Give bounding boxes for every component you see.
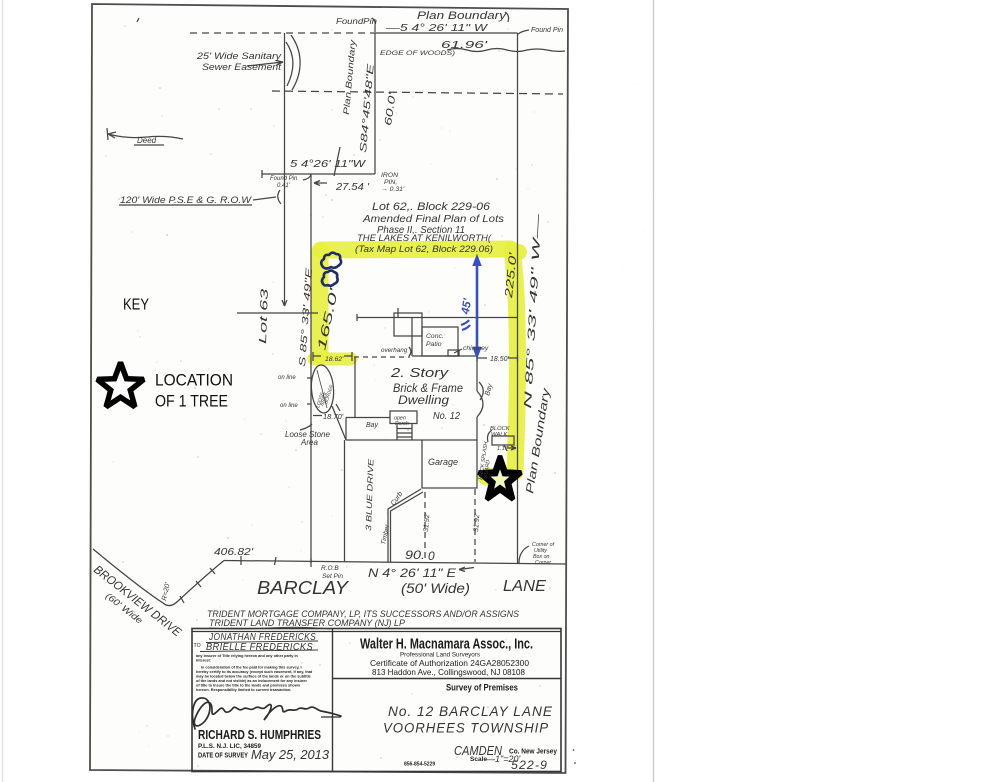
svg-text:Lot 62,. Block 229-06: Lot 62,. Block 229-06 <box>372 201 491 213</box>
svg-text:18.50': 18.50' <box>490 356 510 363</box>
svg-text:R.O.B: R.O.B <box>321 565 339 572</box>
svg-text:may be located below the surfa: may be located below the surface of the … <box>196 675 311 679</box>
svg-text:BRIELLE FREDERICKS: BRIELLE FREDERICKS <box>206 642 313 653</box>
svg-text:406.82': 406.82' <box>214 547 254 558</box>
svg-text:BARCLAY: BARCLAY <box>257 578 350 598</box>
svg-text:OF 1 TREE: OF 1 TREE <box>155 392 228 411</box>
svg-text:KEY: KEY <box>123 297 149 314</box>
svg-text:Plan Boundary: Plan Boundary <box>417 10 508 22</box>
svg-text:Walter H. Macnamara Assoc., In: Walter H. Macnamara Assoc., Inc. <box>360 637 533 653</box>
svg-text:interest:: interest: <box>196 659 211 663</box>
svg-text:(50' Wide): (50' Wide) <box>401 580 470 596</box>
svg-text:2. Story: 2. Story <box>390 365 450 380</box>
svg-text:TO: TO <box>194 643 201 649</box>
svg-text:LANE: LANE <box>503 578 546 595</box>
svg-text:chimney: chimney <box>463 345 489 352</box>
svg-text:Garage: Garage <box>428 457 458 468</box>
svg-text:THE LAKES AT KENILWORTH(: THE LAKES AT KENILWORTH( <box>357 233 492 243</box>
svg-text:In consideration of the fee pa: In consideration of the fee paid for mak… <box>201 666 302 670</box>
svg-text:hereon. Responsibility limited: hereon. Responsibility limited to curren… <box>196 688 291 692</box>
svg-text:Found Pin: Found Pin <box>531 25 563 34</box>
svg-text:FoundPin: FoundPin <box>336 17 378 26</box>
svg-text:on line: on line <box>280 403 298 409</box>
svg-text:IRON: IRON <box>381 172 398 179</box>
svg-text:61.96': 61.96' <box>441 40 489 51</box>
svg-text:(Tax Map Lot 62, Block 229.06): (Tax Map Lot 62, Block 229.06) <box>355 244 493 254</box>
svg-text:Deed: Deed <box>137 136 157 145</box>
svg-text:Found Pin: Found Pin <box>270 176 298 182</box>
svg-text:522-9: 522-9 <box>511 760 548 772</box>
svg-text:0: 0 <box>428 549 435 563</box>
svg-text:27.54 ': 27.54 ' <box>335 181 370 193</box>
svg-text:Dwelling: Dwelling <box>398 393 449 407</box>
svg-text:25' Wide Sanitary: 25' Wide Sanitary <box>196 51 282 61</box>
svg-text:of the lands and not visible): of the lands and not visible) as an indu… <box>196 679 307 683</box>
svg-text:Survey of Premises: Survey of Premises <box>446 683 518 694</box>
svg-text:813 Haddon Ave., Collingswood,: 813 Haddon Ave., Collingswood, NJ 08108 <box>372 667 525 677</box>
svg-text:TRIDENT LAND TRANSFER COMPANY: TRIDENT LAND TRANSFER COMPANY (NJ) LP <box>209 618 405 628</box>
svg-text:on line: on line <box>278 375 296 381</box>
svg-text:18.62': 18.62' <box>325 356 344 363</box>
svg-text:90.: 90. <box>405 548 425 562</box>
svg-text:1.17': 1.17' <box>497 446 510 452</box>
svg-text:hereby certify to its accuracy: hereby certify to its accuracy (except s… <box>196 670 313 674</box>
svg-text:VOORHEES TOWNSHIP: VOORHEES TOWNSHIP <box>383 720 549 736</box>
svg-text:Scale: Scale <box>470 756 487 763</box>
svg-text:Conc.: Conc. <box>426 333 444 340</box>
svg-text:N 4° 26' 11" E: N 4° 26' 11" E <box>368 566 457 580</box>
svg-text:Patio: Patio <box>426 341 442 348</box>
svg-text:Porch: Porch <box>395 421 409 427</box>
svg-text:overhang: overhang <box>381 347 408 354</box>
svg-text:WALK: WALK <box>491 432 508 438</box>
svg-text:of title to insure the title t: of title to insure the title to the land… <box>196 684 301 688</box>
svg-text:0.41': 0.41' <box>277 183 291 189</box>
svg-text:May 25, 2013: May 25, 2013 <box>251 747 330 762</box>
svg-text:RICHARD S. HUMPHRIES: RICHARD S. HUMPHRIES <box>198 728 321 742</box>
svg-text:Area: Area <box>300 438 318 447</box>
svg-text:31.92': 31.92' <box>423 512 431 532</box>
svg-text:→ 0.31': → 0.31' <box>381 186 405 193</box>
svg-text:any Insurer of Title relying h: any Insurer of Title relying hereon and … <box>196 654 299 658</box>
svg-text:Sewer Easement: Sewer Easement <box>202 62 282 72</box>
svg-text:31.92': 31.92' <box>473 512 481 532</box>
svg-text:Corner: Corner <box>535 560 551 566</box>
svg-text:DATE OF SURVEY: DATE OF SURVEY <box>198 753 248 760</box>
svg-text:Bay: Bay <box>366 422 379 429</box>
svg-text:EDGE OF WOODS): EDGE OF WOODS) <box>380 50 455 57</box>
svg-text:18.70': 18.70' <box>323 412 344 421</box>
svg-text:No. 12: No. 12 <box>433 411 460 422</box>
svg-text:120' Wide P.S.E & G. R.O.W: 120' Wide P.S.E & G. R.O.W <box>120 195 252 205</box>
svg-text:5 4°26' 11"W: 5 4°26' 11"W <box>290 158 366 170</box>
svg-text:—5 4° 26' 11" W: —5 4° 26' 11" W <box>385 22 489 34</box>
svg-text:Lot 63: Lot 63 <box>257 288 271 344</box>
svg-text:LOCATION: LOCATION <box>155 371 233 390</box>
svg-text:No. 12 BARCLAY LANE: No. 12 BARCLAY LANE <box>388 703 553 719</box>
svg-text:856-854-5229: 856-854-5229 <box>404 762 435 768</box>
svg-text:PIN,: PIN, <box>384 179 397 186</box>
